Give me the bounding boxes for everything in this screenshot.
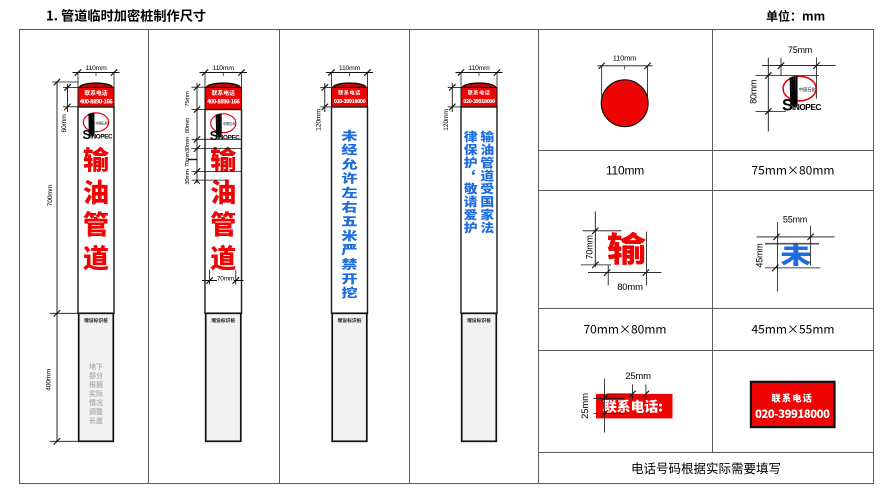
svg-text:30mm: 30mm [185,169,191,185]
svg-text:80mm: 80mm [185,117,191,133]
svg-text:70mm×80mm: 70mm×80mm [583,321,666,338]
svg-text:护: 护 [464,218,478,235]
svg-text:55mm: 55mm [783,214,807,224]
svg-text:020-39918000: 020-39918000 [755,406,830,422]
svg-text:80mm: 80mm [617,282,643,293]
svg-text:75mm: 75mm [185,91,191,107]
svg-text:25mm: 25mm [625,371,651,382]
svg-text:120mm: 120mm [315,109,322,131]
svg-text:埋设标识桩: 埋设标识桩 [338,317,362,324]
svg-text:400-8890-166: 400-8890-166 [80,98,113,106]
svg-text:400-8890-166: 400-8890-166 [207,98,240,106]
svg-text:长度: 长度 [89,416,103,426]
svg-text:60mm: 60mm [61,114,68,133]
svg-text:挖: 挖 [341,284,357,302]
svg-text:1. 管道临时加密桩制作尺寸: 1. 管道临时加密桩制作尺寸 [46,6,206,25]
svg-text:联系电话: 联系电话 [84,88,107,97]
svg-text:70mm: 70mm [217,275,234,282]
svg-text:联系电话: 联系电话 [212,88,235,97]
svg-text:法: 法 [480,218,494,235]
svg-text:联系电话: 联系电话 [772,391,814,405]
svg-text:120mm: 120mm [443,109,450,131]
svg-text:700mm: 700mm [47,184,54,206]
svg-text:400mm: 400mm [46,369,53,391]
svg-text:联系电话: 联系电话 [468,88,491,96]
svg-text:110mm: 110mm [468,65,490,72]
svg-text:埋设标识桩: 埋设标识桩 [467,317,491,324]
svg-text:80mm: 80mm [749,80,759,104]
svg-text:道: 道 [210,239,236,276]
svg-text:020-39918000: 020-39918000 [334,97,366,105]
svg-text:管: 管 [83,205,109,242]
svg-text:25mm: 25mm [580,393,591,419]
svg-text:110mm: 110mm [606,164,644,178]
svg-text:管: 管 [210,205,236,242]
svg-text:75mm: 75mm [788,45,812,55]
svg-text:45mm: 45mm [755,243,765,267]
svg-text:电话号码根据实际需要填写: 电话号码根据实际需要填写 [631,458,781,477]
svg-text:110mm: 110mm [213,65,235,72]
svg-text:110mm: 110mm [85,65,107,72]
svg-text:未: 未 [780,237,811,271]
svg-text:联系电话: 联系电话 [338,88,361,96]
svg-text:45mm×55mm: 45mm×55mm [751,321,834,338]
svg-text:110mm: 110mm [613,53,636,62]
svg-text:70mm: 70mm [585,235,595,259]
svg-text:道: 道 [83,239,109,276]
svg-text:埋设标识桩: 埋设标识桩 [211,317,235,324]
svg-text:75mm×80mm: 75mm×80mm [751,162,834,179]
svg-text:埋设标识桩: 埋设标识桩 [84,317,108,324]
svg-text:30mm: 30mm [185,136,191,152]
svg-text:110mm: 110mm [339,65,361,72]
svg-text:020-39918000: 020-39918000 [463,97,495,105]
svg-text:输: 输 [607,222,646,271]
svg-text:单位：mm: 单位：mm [766,8,825,25]
